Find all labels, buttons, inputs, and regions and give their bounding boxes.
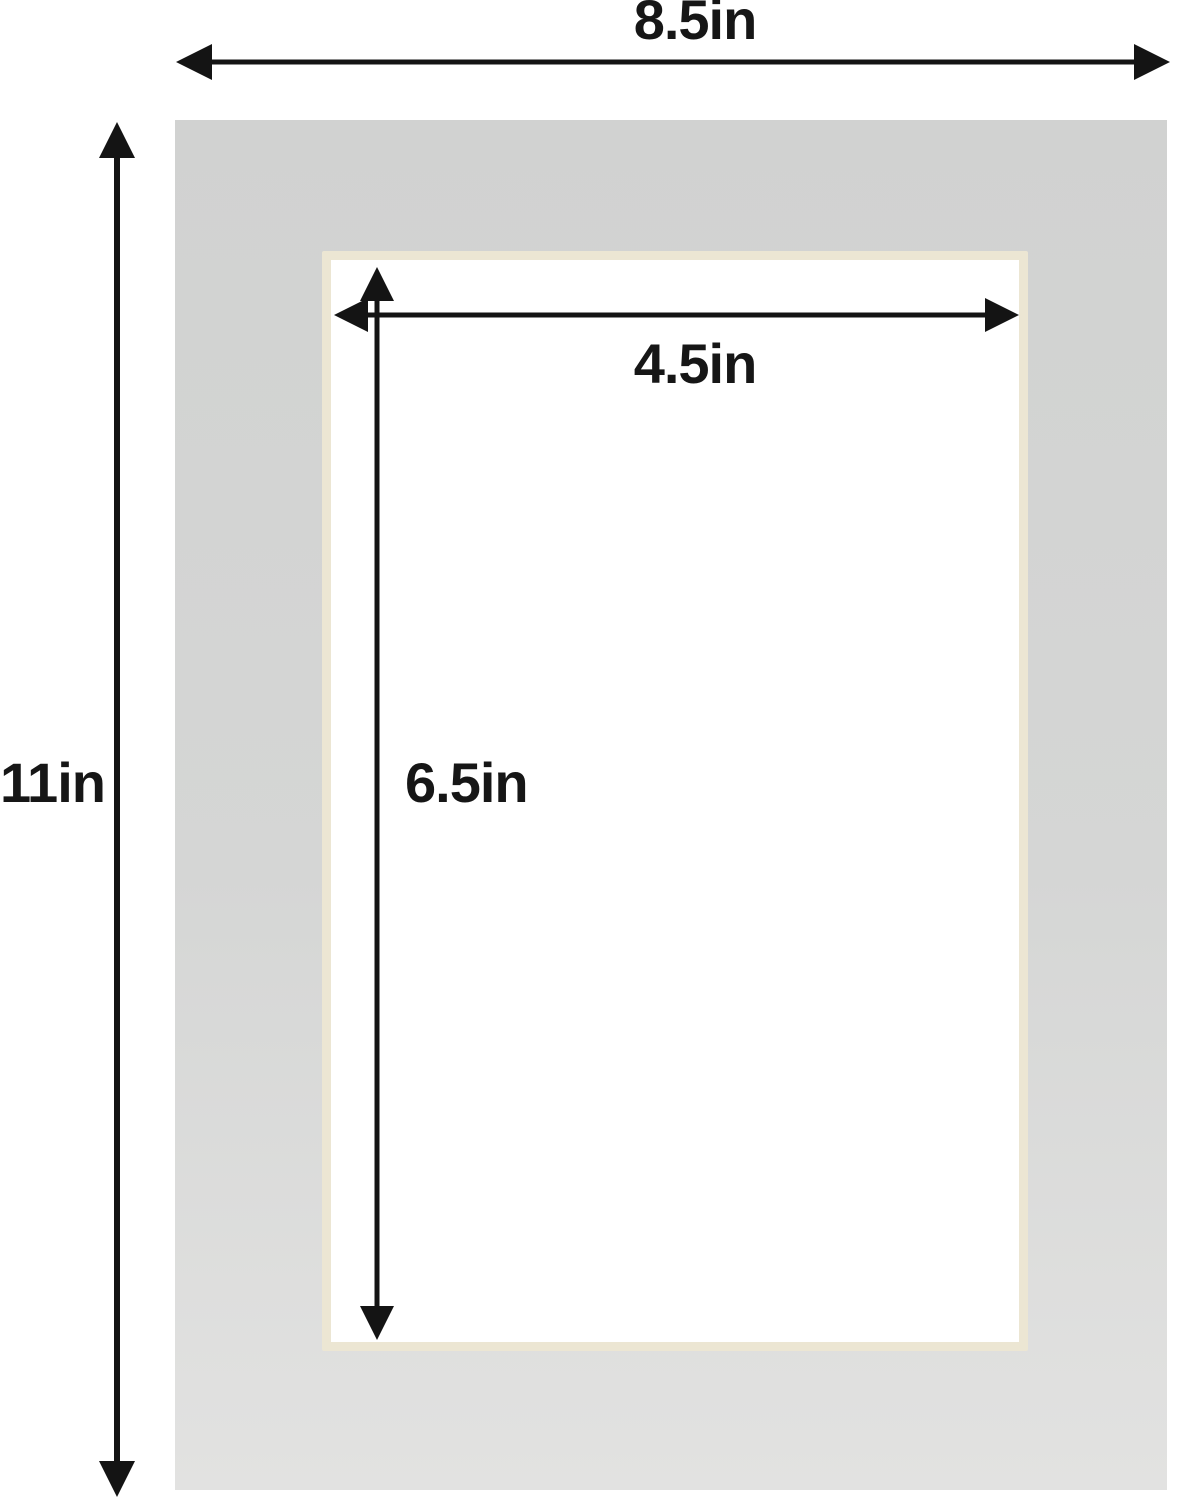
opening-height-label: 6.5in [405, 755, 528, 811]
overall-height-label: 11in [0, 755, 105, 811]
arrowhead-up-icon [99, 122, 135, 158]
arrowhead-down-icon [99, 1461, 135, 1497]
overall-width-label: 8.5in [545, 0, 845, 48]
opening-width-label: 4.5in [545, 336, 845, 392]
product-diagram: 8.5in 11in 4.5in 6.5in [0, 0, 1181, 1500]
arrowhead-right-icon [1134, 44, 1170, 80]
arrowhead-left-icon [176, 44, 212, 80]
